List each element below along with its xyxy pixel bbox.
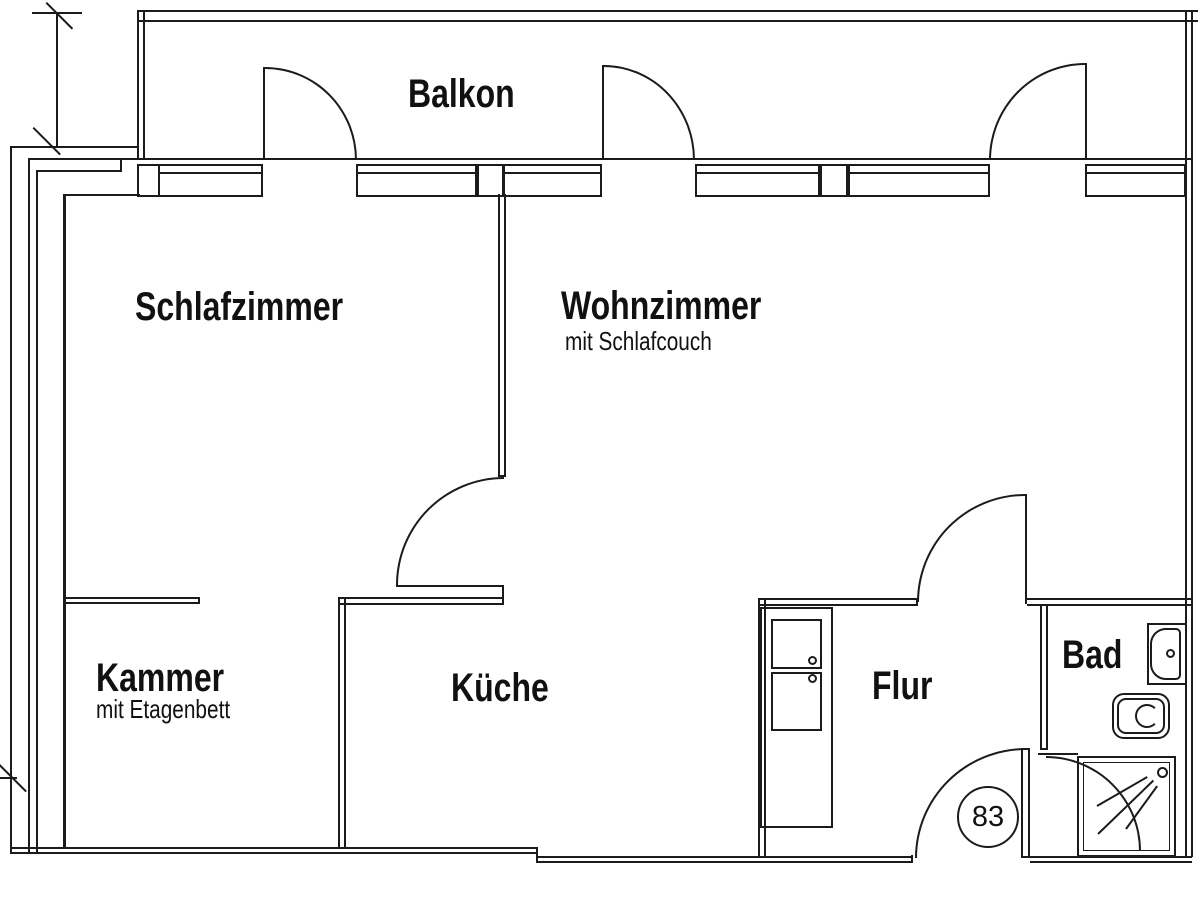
window bbox=[695, 164, 820, 197]
wall-segment bbox=[1185, 10, 1187, 857]
wall-segment bbox=[1027, 598, 1192, 600]
wall-segment bbox=[1027, 604, 1192, 606]
wall-segment bbox=[536, 861, 913, 863]
wall-end-cap bbox=[502, 585, 504, 605]
wall-segment bbox=[64, 597, 200, 599]
door-swing-arc bbox=[604, 65, 695, 160]
door-swing-arc bbox=[917, 494, 1025, 602]
wall-segment bbox=[36, 170, 38, 852]
wall-segment bbox=[137, 10, 139, 160]
wall-segment bbox=[1038, 753, 1078, 755]
window bbox=[356, 164, 477, 197]
wall-segment bbox=[338, 597, 504, 599]
wall-segment bbox=[338, 597, 340, 849]
wall-segment bbox=[498, 194, 500, 477]
apartment-number-badge: 83 bbox=[957, 786, 1019, 848]
room-label-flur: Flur bbox=[872, 666, 932, 706]
wall-segment bbox=[911, 855, 913, 863]
sink-drain bbox=[1166, 649, 1175, 658]
door-swing-arc bbox=[989, 63, 1085, 160]
wall-segment bbox=[10, 852, 537, 854]
wall-segment bbox=[504, 194, 506, 477]
wall-segment bbox=[536, 856, 913, 858]
door-swing-arc bbox=[396, 477, 504, 585]
wall-end-cap bbox=[1040, 748, 1048, 750]
window-glass-line bbox=[356, 172, 477, 174]
closet-knob bbox=[808, 674, 817, 683]
door-leaf bbox=[1025, 494, 1027, 604]
apartment-number: 83 bbox=[972, 801, 1004, 834]
room-label-schlafzimmer: Schlafzimmer bbox=[135, 287, 343, 327]
wall-segment bbox=[758, 598, 918, 600]
wall-segment bbox=[63, 194, 140, 196]
window-glass-line bbox=[1085, 172, 1186, 174]
wall-segment bbox=[143, 10, 145, 160]
room-label-kammer: Kammer bbox=[96, 658, 224, 698]
wall-segment bbox=[137, 20, 1198, 22]
wall-segment bbox=[10, 847, 537, 849]
wall-pier bbox=[820, 164, 848, 197]
wall-segment bbox=[36, 170, 122, 172]
wall-segment bbox=[1040, 604, 1042, 750]
floor-plan: Balkon Schlafzimmer Wohnzimmer mit Schla… bbox=[0, 0, 1200, 900]
door-leaf bbox=[396, 585, 504, 587]
window bbox=[503, 164, 602, 197]
wall-segment bbox=[344, 597, 346, 849]
wall-end-cap bbox=[198, 597, 200, 604]
wall-segment bbox=[64, 602, 200, 604]
wall-segment bbox=[10, 146, 137, 148]
door-swing-arc bbox=[265, 67, 357, 160]
wall-segment bbox=[137, 10, 1198, 12]
window-glass-line bbox=[158, 172, 263, 174]
wall-pier bbox=[137, 164, 160, 197]
wall-pier bbox=[477, 164, 504, 197]
window bbox=[158, 164, 263, 197]
window-glass-line bbox=[848, 172, 990, 174]
wall-segment bbox=[63, 194, 66, 848]
wall-segment bbox=[1046, 604, 1048, 750]
closet-knob bbox=[808, 656, 817, 665]
room-label-balkon: Balkon bbox=[408, 74, 515, 114]
toilet-water bbox=[1135, 704, 1159, 728]
wall-segment bbox=[10, 146, 12, 852]
window-glass-line bbox=[503, 172, 602, 174]
room-sublabel-kammer: mit Etagenbett bbox=[96, 696, 230, 722]
door-leaf bbox=[1085, 63, 1087, 160]
room-label-kueche: Küche bbox=[451, 668, 549, 708]
window-glass-line bbox=[695, 172, 820, 174]
room-sublabel-wohnzimmer: mit Schlafcouch bbox=[565, 328, 712, 354]
room-label-wohnzimmer: Wohnzimmer bbox=[561, 286, 761, 326]
shower-drain bbox=[1157, 767, 1168, 778]
dimension-tick bbox=[0, 777, 17, 779]
room-label-bad: Bad bbox=[1062, 635, 1122, 675]
wall-segment bbox=[1030, 861, 1192, 863]
wall-segment bbox=[1191, 10, 1193, 857]
wall-segment bbox=[338, 603, 504, 605]
dimension-slash bbox=[46, 2, 74, 30]
window bbox=[1085, 164, 1186, 197]
window bbox=[848, 164, 990, 197]
wall-segment bbox=[758, 604, 918, 606]
wall-segment bbox=[28, 158, 30, 852]
dimension-line bbox=[56, 13, 58, 146]
wall-segment bbox=[120, 158, 122, 172]
